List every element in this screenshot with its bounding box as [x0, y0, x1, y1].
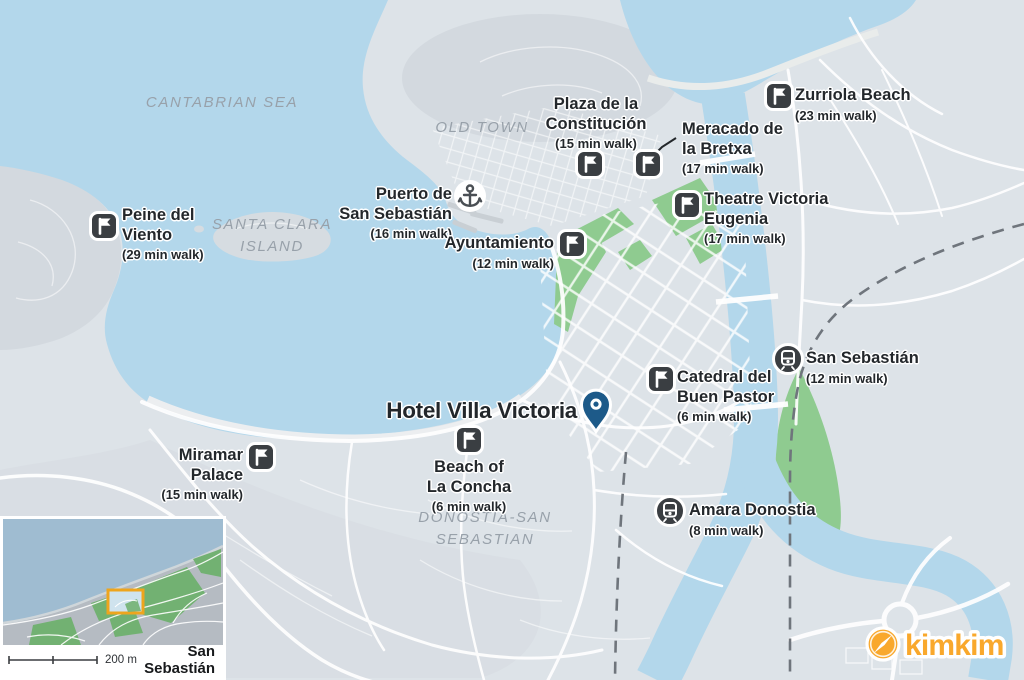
poi-walk-time: (15 min walk) [161, 486, 243, 504]
poi-label: Plaza de laConstitución(15 min walk) [546, 95, 647, 153]
flag-icon [672, 190, 703, 221]
poi-walk-time: (12 min walk) [445, 255, 554, 273]
poi-name: la Bretxa [682, 140, 783, 160]
poi-name: Eugenia [704, 210, 828, 230]
poi-marker [557, 229, 588, 260]
poi-marker [633, 149, 664, 180]
poi-label: Beach ofLa Concha(6 min walk) [427, 458, 511, 516]
poi-marker [764, 81, 795, 112]
inset-map-canvas [3, 519, 223, 645]
inset-overview-map: 200 m San Sebastián [0, 516, 226, 680]
poi-name: Meracado de [682, 120, 783, 140]
poi-walk-time: (16 min walk) [339, 225, 452, 243]
poi-marker [454, 425, 485, 456]
poi-label: Ayuntamiento(12 min walk) [445, 234, 554, 273]
flag-icon [557, 229, 588, 260]
poi-walk-time: (17 min walk) [682, 160, 783, 178]
poi-walk-time: (6 min walk) [427, 498, 511, 516]
kimkim-logo[interactable]: kimkim [862, 621, 1012, 672]
poi-name: Buen Pastor [677, 388, 774, 408]
poi-name: La Concha [427, 478, 511, 498]
area-label-line: ISLAND [212, 236, 332, 258]
poi-label: Puerto deSan Sebastián(16 min walk) [339, 185, 452, 243]
poi-name: Peine del [122, 206, 204, 226]
poi-walk-time: (6 min walk) [677, 408, 774, 426]
poi-name: Palace [161, 466, 243, 486]
poi-marker [453, 179, 487, 213]
poi-marker [246, 442, 277, 473]
flag-icon [633, 149, 664, 180]
logo-text: kimkim [905, 629, 1004, 662]
flag-icon [246, 442, 277, 473]
area-label-old-town: OLD TOWN [435, 117, 528, 139]
poi-walk-time: (23 min walk) [795, 107, 911, 125]
poi-label: Hotel Villa Victoria [386, 398, 577, 424]
poi-walk-time: (8 min walk) [689, 522, 816, 540]
flag-icon [646, 364, 677, 395]
poi-name: Miramar [161, 446, 243, 466]
flag-icon [575, 149, 606, 180]
poi-label: San Sebastián(12 min walk) [806, 349, 919, 388]
poi-marker [646, 364, 677, 395]
poi-name: San Sebastián [806, 349, 919, 369]
poi-marker [575, 149, 606, 180]
poi-name: Plaza de la [546, 95, 647, 115]
poi-name: Catedral del [677, 368, 774, 388]
inset-city-label: San Sebastián [137, 643, 219, 677]
poi-name: Constitución [546, 115, 647, 135]
poi-name: Hotel Villa Victoria [386, 398, 577, 424]
inset-viewport-rect [108, 590, 143, 613]
poi-marker [672, 190, 703, 221]
area-label-line: CANTABRIAN SEA [146, 92, 298, 114]
poi-walk-time: (12 min walk) [806, 370, 919, 388]
poi-name: Viento [122, 226, 204, 246]
flag-icon [89, 211, 120, 242]
compass-icon [867, 628, 899, 660]
poi-label: Amara Donostia(8 min walk) [689, 501, 816, 540]
area-label-cantabrian-sea: CANTABRIAN SEA [146, 92, 298, 114]
scale-label: 200 m [105, 654, 137, 666]
poi-label: Theatre VictoriaEugenia(17 min walk) [704, 190, 828, 248]
poi-marker [771, 342, 805, 376]
poi-walk-time: (29 min walk) [122, 246, 204, 264]
poi-name: Ayuntamiento [445, 234, 554, 254]
poi-name: Amara Donostia [689, 501, 816, 521]
poi-marker [577, 386, 615, 434]
poi-walk-time: (15 min walk) [546, 135, 647, 153]
poi-marker [653, 494, 687, 528]
flag-icon [764, 81, 795, 112]
poi-label: Meracado dela Bretxa(17 min walk) [682, 120, 783, 178]
poi-label: Zurriola Beach(23 min walk) [795, 86, 911, 125]
poi-name: San Sebastián [339, 205, 452, 225]
area-label-line: SEBASTIAN [418, 529, 551, 551]
poi-name: Puerto de [339, 185, 452, 205]
area-label-line: OLD TOWN [435, 117, 528, 139]
area-label-line: SANTA CLARA [212, 214, 332, 236]
map-screenshot: CANTABRIAN SEAOLD TOWNSANTA CLARAISLANDD… [0, 0, 1024, 680]
anchor-icon [453, 179, 487, 213]
inset-info-bar: 200 m San Sebastián [3, 645, 223, 675]
poi-walk-time: (17 min walk) [704, 230, 828, 248]
poi-name: Zurriola Beach [795, 86, 911, 106]
scale-bar [5, 653, 101, 667]
area-label-santa-clara-island: SANTA CLARAISLAND [212, 214, 332, 258]
poi-label: MiramarPalace(15 min walk) [161, 446, 243, 504]
poi-label: Catedral delBuen Pastor(6 min walk) [677, 368, 774, 426]
poi-label: Peine delViento(29 min walk) [122, 206, 204, 264]
flag-icon [454, 425, 485, 456]
poi-name: Theatre Victoria [704, 190, 828, 210]
train-icon [653, 494, 687, 528]
poi-marker [89, 211, 120, 242]
train-icon [771, 342, 805, 376]
pin-icon [577, 386, 615, 434]
poi-name: Beach of [427, 458, 511, 478]
